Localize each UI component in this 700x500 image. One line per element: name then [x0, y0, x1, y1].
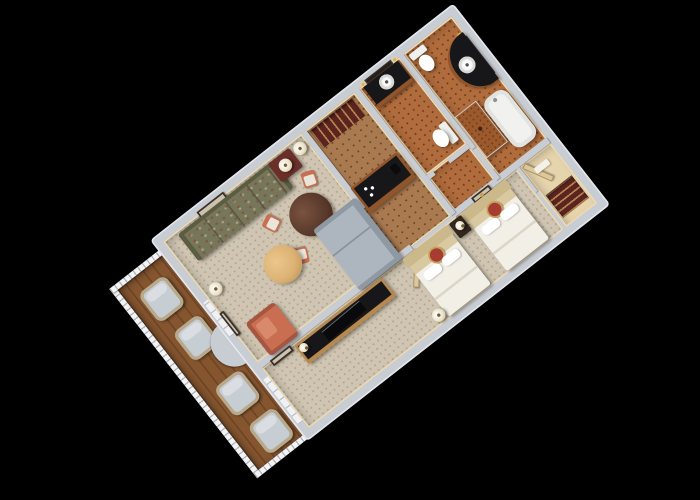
bathtub-faucet: [492, 97, 498, 103]
floor-plan: [102, 6, 608, 479]
render-canvas: [0, 0, 700, 500]
shower-drain: [477, 126, 483, 132]
